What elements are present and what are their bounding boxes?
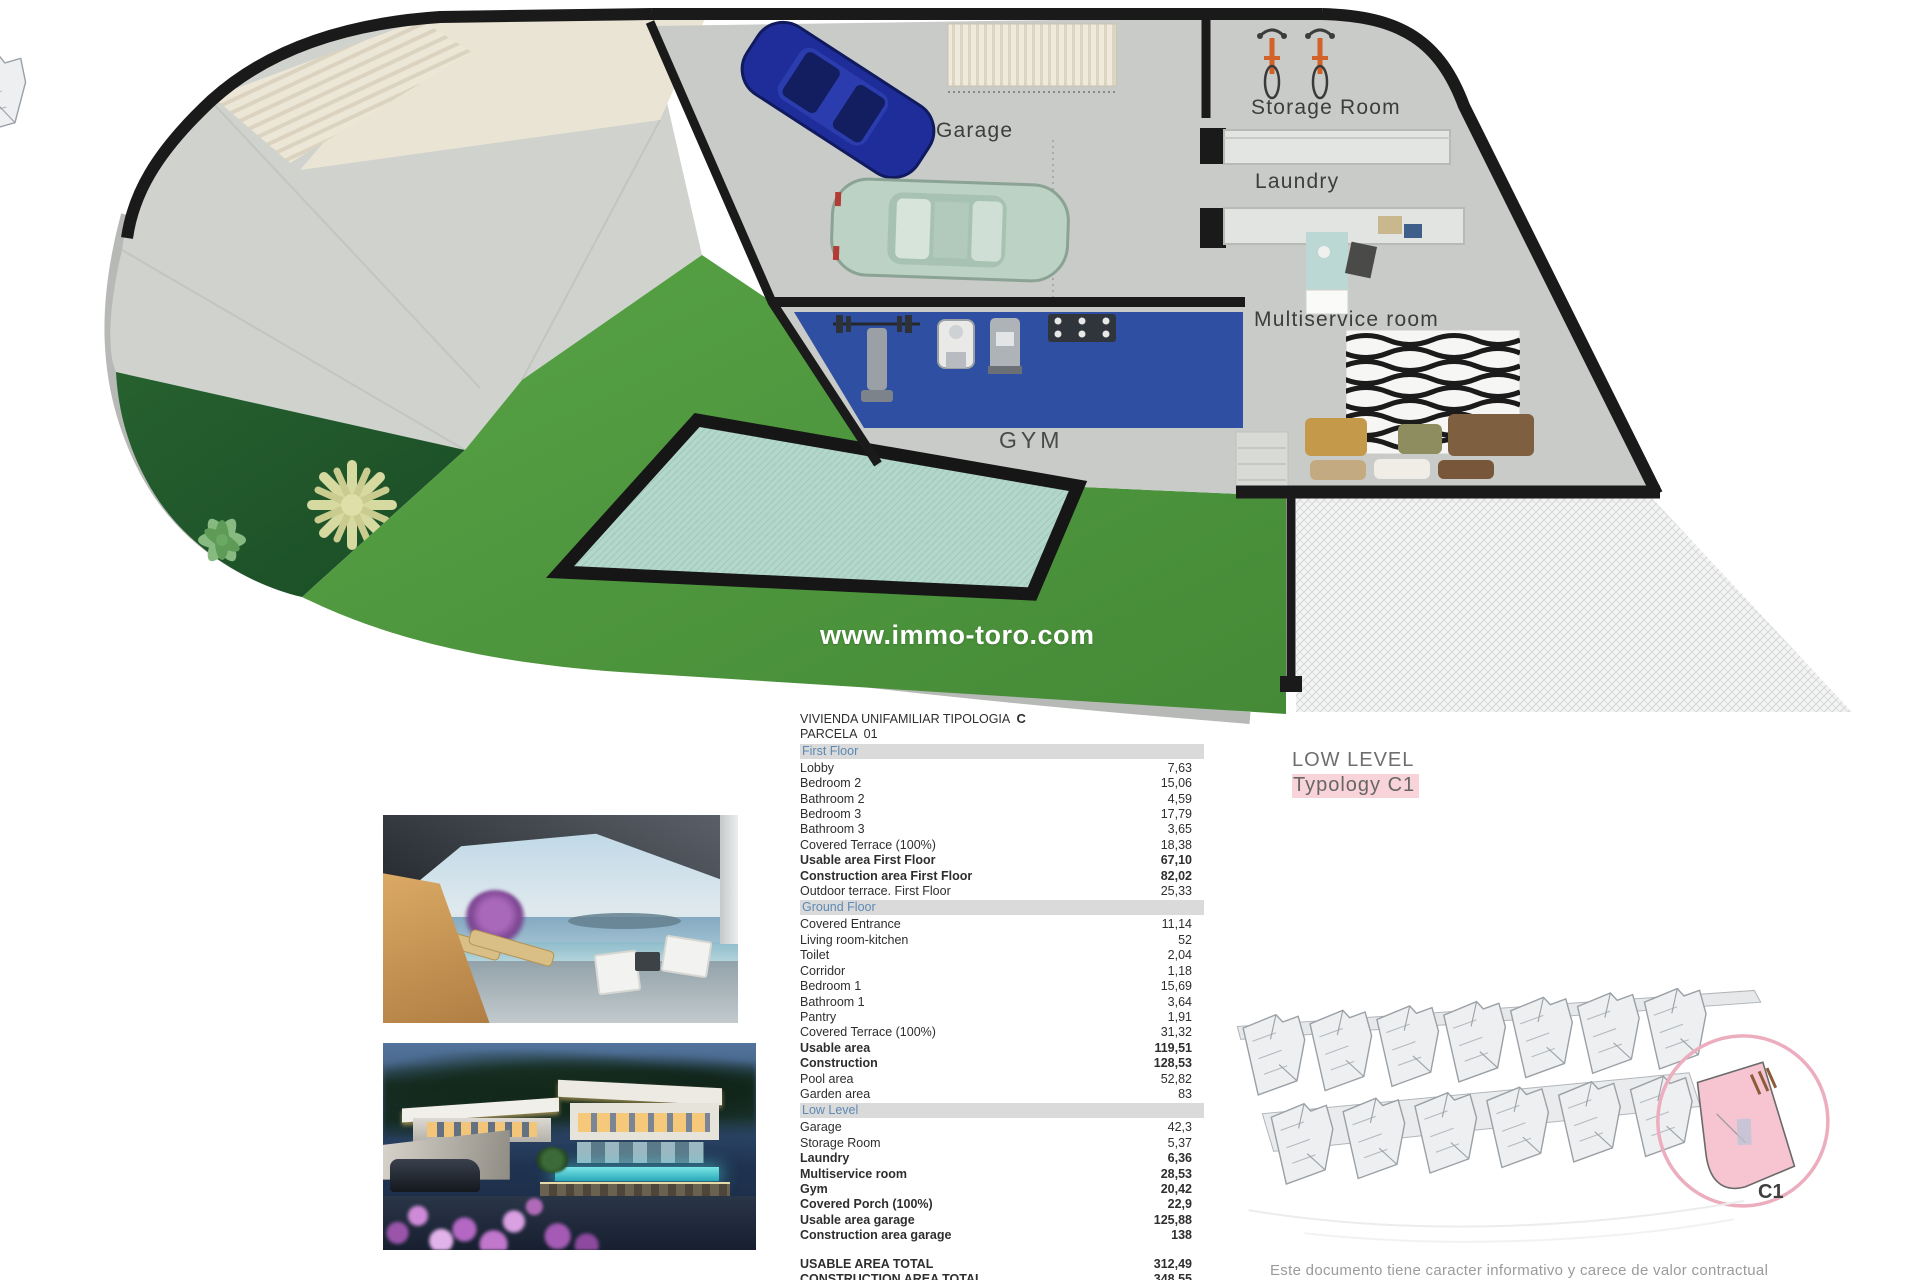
laundry-room-label: Laundry bbox=[1255, 170, 1339, 194]
green-car-icon bbox=[830, 178, 1069, 282]
area-row: Usable area First Floor67,10 bbox=[800, 853, 1204, 868]
hatched-area bbox=[1296, 498, 1852, 712]
gym-room-label: GYM bbox=[999, 427, 1063, 454]
area-row: Usable area garage125,88 bbox=[800, 1213, 1204, 1228]
villa-wing bbox=[570, 1103, 719, 1140]
area-row: Bathroom 33,65 bbox=[800, 822, 1204, 837]
area-table-totals: USABLE AREA TOTAL312,49CONSTRUCTION AREA… bbox=[800, 1257, 1204, 1280]
storage-shelf bbox=[1224, 130, 1450, 164]
storage-room-label: Storage Room bbox=[1251, 96, 1401, 120]
area-row: Covered Entrance11,14 bbox=[800, 917, 1204, 932]
area-row: Construction area garage138 bbox=[800, 1228, 1204, 1243]
area-row: Covered Porch (100%)22,9 bbox=[800, 1197, 1204, 1212]
unit-c1-label: C1 bbox=[1758, 1181, 1784, 1203]
area-row: Toilet2,04 bbox=[800, 948, 1204, 963]
disclaimer: Este documento tiene caracter informativ… bbox=[1270, 1262, 1768, 1279]
area-row: Corridor1,18 bbox=[800, 964, 1204, 979]
area-row: Pool area52,82 bbox=[800, 1072, 1204, 1087]
area-row: Lobby7,63 bbox=[800, 761, 1204, 776]
garage-door bbox=[948, 24, 1116, 92]
area-row: Bedroom 115,69 bbox=[800, 979, 1204, 994]
area-row: Living room-kitchen52 bbox=[800, 933, 1204, 948]
gym-machine-icon bbox=[988, 318, 1022, 374]
table-title: VIVIENDA UNIFAMILIAR TIPOLOGIA C bbox=[800, 711, 1204, 727]
area-table-sections: First FloorLobby7,63Bedroom 215,06Bathro… bbox=[800, 744, 1204, 1244]
stone-column bbox=[720, 815, 738, 944]
photo-terrace-pool-view bbox=[383, 815, 738, 1023]
table-parcel: PARCELA 01 bbox=[800, 727, 1204, 742]
multiservice-room-label: Multiservice room bbox=[1254, 308, 1439, 332]
level-caption: LOW LEVEL Typology C1 bbox=[1292, 749, 1419, 798]
area-row: Laundry6,36 bbox=[800, 1151, 1204, 1166]
side-table bbox=[635, 952, 660, 971]
area-row: Garage42,3 bbox=[800, 1120, 1204, 1135]
highlighted-unit bbox=[1697, 1061, 1795, 1189]
area-row: Covered Terrace (100%)31,32 bbox=[800, 1025, 1204, 1040]
area-row: Construction128,53 bbox=[800, 1056, 1204, 1071]
area-row: Construction area First Floor82,02 bbox=[800, 869, 1204, 884]
area-row: Bathroom 13,64 bbox=[800, 995, 1204, 1010]
gym-machine-icon bbox=[938, 320, 974, 368]
area-row: Bedroom 317,79 bbox=[800, 807, 1204, 822]
area-row: Pantry1,91 bbox=[800, 1010, 1204, 1025]
watermark: www.immo-toro.com bbox=[820, 620, 1095, 651]
section-header: Ground Floor bbox=[800, 900, 1204, 915]
area-row: Covered Terrace (100%)18,38 bbox=[800, 838, 1204, 853]
area-row: Multiservice room28,53 bbox=[800, 1167, 1204, 1182]
area-table: VIVIENDA UNIFAMILIAR TIPOLOGIA C PARCELA… bbox=[800, 711, 1204, 1280]
brochure-page: C1 Garage Storage Room Laundry Multiserv… bbox=[0, 0, 1920, 1280]
purple-flowers bbox=[383, 1136, 674, 1250]
area-row: Storage Room5,37 bbox=[800, 1136, 1204, 1151]
total-row: CONSTRUCTION AREA TOTAL348,55 bbox=[800, 1272, 1204, 1280]
gym-area bbox=[794, 312, 1243, 428]
photo-villa-night-view bbox=[383, 1043, 756, 1250]
total-row: USABLE AREA TOTAL312,49 bbox=[800, 1257, 1204, 1272]
site-unit-outline bbox=[0, 54, 27, 134]
floor-plan bbox=[110, 11, 1852, 718]
area-row: Bedroom 215,06 bbox=[800, 776, 1204, 791]
level-title: LOW LEVEL bbox=[1292, 749, 1419, 772]
chair bbox=[661, 934, 713, 978]
section-header: First Floor bbox=[800, 744, 1204, 759]
garage-room-label: Garage bbox=[936, 119, 1013, 143]
section-header: Low Level bbox=[800, 1103, 1204, 1118]
area-row: Gym20,42 bbox=[800, 1182, 1204, 1197]
level-typology-badge: Typology C1 bbox=[1292, 774, 1419, 798]
area-row: Outdoor terrace. First Floor25,33 bbox=[800, 884, 1204, 899]
area-row: Usable area119,51 bbox=[800, 1041, 1204, 1056]
area-row: Garden area83 bbox=[800, 1087, 1204, 1102]
dumbbell-rack-icon bbox=[1048, 314, 1116, 342]
area-row: Bathroom 24,59 bbox=[800, 792, 1204, 807]
